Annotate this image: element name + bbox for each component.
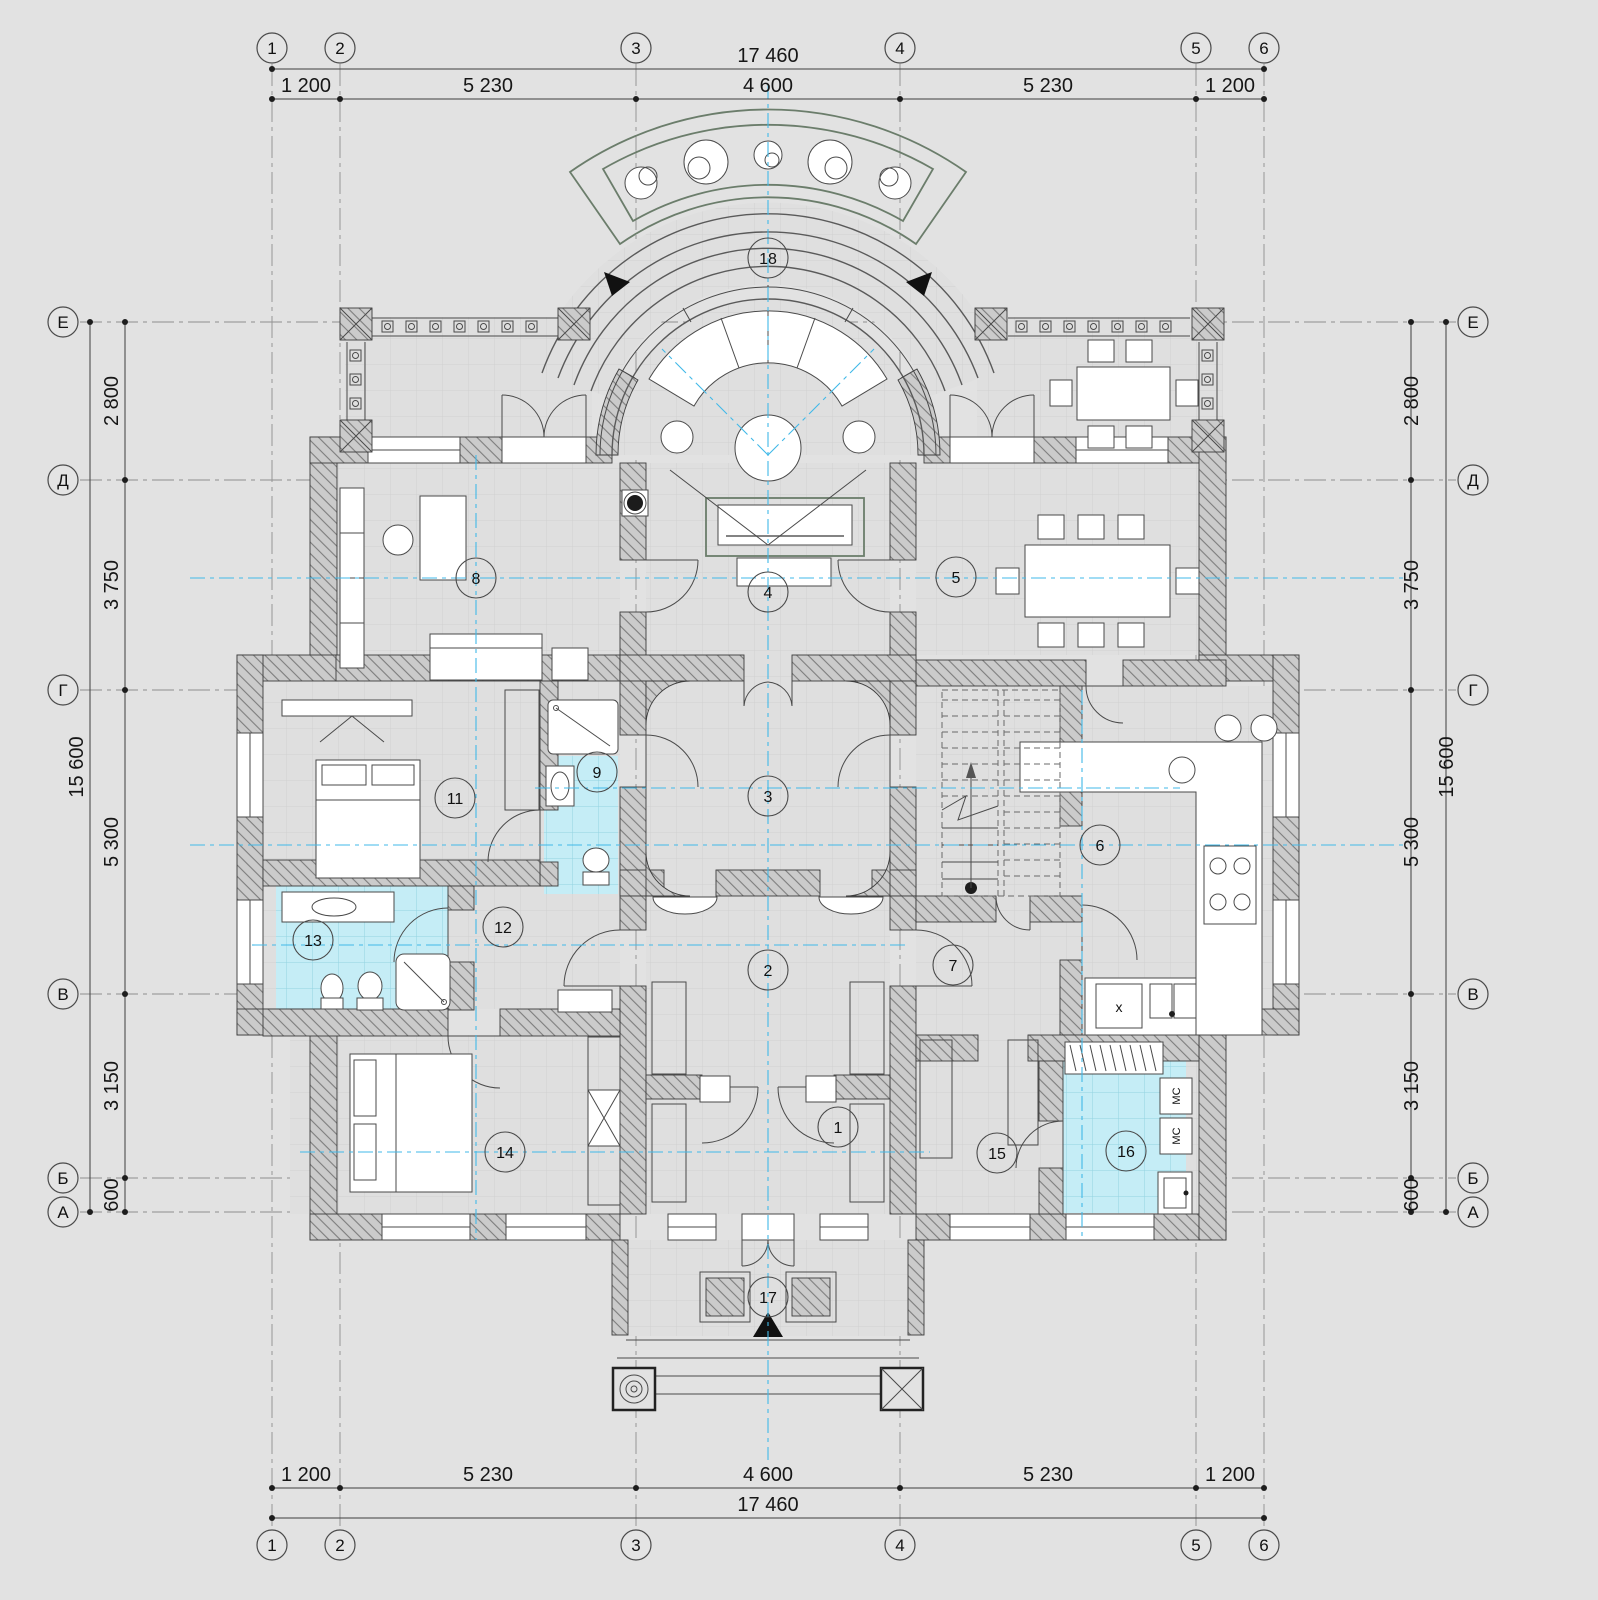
room-label-4: 4	[764, 585, 773, 602]
axis-right-d: Д	[1467, 471, 1479, 490]
axis-left-b: Б	[57, 1169, 68, 1188]
dim-bottom-total: 17 460	[737, 1494, 798, 1516]
dim-right-seg-3: 5 300	[1401, 817, 1423, 867]
dim-top-seg-3: 4 600	[743, 75, 793, 97]
bar-stool	[1251, 715, 1277, 741]
axis-top-5: 5	[1191, 39, 1200, 58]
axis-bottom-2: 2	[335, 1536, 344, 1555]
room-label-16: 16	[1117, 1144, 1135, 1161]
dim-top-seg-5: 1 200	[1205, 75, 1255, 97]
axis-top-2: 2	[335, 39, 344, 58]
dim-left-seg-2: 3 750	[101, 560, 123, 610]
dim-left-seg-4: 3 150	[101, 1061, 123, 1111]
washer-label-2: МС	[1171, 1127, 1183, 1144]
axis-left-e: Е	[57, 313, 68, 332]
dim-left-seg-1: 2 800	[101, 376, 123, 426]
axis-right-a: А	[1467, 1203, 1479, 1222]
room-label-14: 14	[496, 1145, 514, 1162]
dim-left-seg-5: 600	[101, 1178, 123, 1211]
dimensions-bottom: 1 200 5 230 4 600 5 230 1 200 17 460	[269, 1464, 1267, 1521]
room-label-3: 3	[764, 789, 773, 806]
dimensions-right: 15 600 2 800 3 750 5 300 3 150 600	[1401, 319, 1458, 1215]
room-label-8: 8	[472, 571, 481, 588]
axis-left-a: А	[57, 1203, 69, 1222]
axis-top-3: 3	[631, 39, 640, 58]
dim-bottom-seg-5: 1 200	[1205, 1464, 1255, 1486]
axis-bottom-6: 6	[1259, 1536, 1268, 1555]
dim-bottom-seg-4: 5 230	[1023, 1464, 1073, 1486]
room-label-1: 1	[834, 1120, 843, 1137]
room-label-12: 12	[494, 920, 512, 937]
axis-right-e: Е	[1467, 313, 1478, 332]
axis-bubbles-right: Е Д Г В Б А	[1458, 307, 1488, 1227]
dim-bottom-seg-3: 4 600	[743, 1464, 793, 1486]
room-label-18: 18	[759, 251, 777, 268]
dishwasher-label: х	[1116, 999, 1123, 1015]
floor-plan-drawing: МС МС х	[0, 0, 1598, 1600]
dim-left-seg-3: 5 300	[101, 817, 123, 867]
axis-right-v: В	[1467, 985, 1478, 1004]
axis-left-g: Г	[58, 681, 67, 700]
axis-bottom-5: 5	[1191, 1536, 1200, 1555]
dimensions-left: 15 600 2 800 3 750 5 300 3 150 600	[66, 319, 128, 1215]
dim-right-seg-4: 3 150	[1401, 1061, 1423, 1111]
bar-stool	[1215, 715, 1241, 741]
porch-column-right	[881, 1368, 923, 1410]
room-label-13: 13	[304, 933, 322, 950]
porch-column-left	[613, 1368, 655, 1410]
washer-label-1: МС	[1171, 1087, 1183, 1104]
stove-icon	[1204, 846, 1256, 924]
axis-top-4: 4	[895, 39, 904, 58]
dim-top-seg-2: 5 230	[463, 75, 513, 97]
dim-top-total: 17 460	[737, 45, 798, 67]
dim-right-seg-2: 3 750	[1401, 560, 1423, 610]
floor-plan-canvas: МС МС х	[0, 0, 1598, 1600]
room-label-6: 6	[1096, 838, 1105, 855]
dim-right-seg-1: 2 800	[1401, 376, 1423, 426]
axis-right-g: Г	[1468, 681, 1477, 700]
axis-left-d: Д	[57, 471, 69, 490]
dim-bottom-seg-1: 1 200	[281, 1464, 331, 1486]
axis-bottom-4: 4	[895, 1536, 904, 1555]
dim-right-seg-5: 600	[1401, 1178, 1423, 1211]
axis-top-6: 6	[1259, 39, 1268, 58]
dim-right-total: 15 600	[1436, 736, 1458, 797]
room-label-15: 15	[988, 1146, 1006, 1163]
room-label-11: 11	[447, 791, 464, 808]
room-label-2: 2	[764, 963, 773, 980]
axis-left-v: В	[57, 985, 68, 1004]
axis-top-1: 1	[267, 39, 276, 58]
dim-top-seg-4: 5 230	[1023, 75, 1073, 97]
hall-console	[558, 990, 612, 1012]
room-label-9: 9	[593, 765, 602, 782]
bar-stool	[1169, 757, 1195, 783]
room-label-5: 5	[952, 570, 961, 587]
room-label-7: 7	[949, 958, 958, 975]
dimensions-top: 17 460 1 200 5 230 4 600 5 230 1 200	[269, 45, 1267, 102]
axis-bottom-1: 1	[267, 1536, 276, 1555]
dim-left-total: 15 600	[66, 736, 88, 797]
dim-bottom-seg-2: 5 230	[463, 1464, 513, 1486]
room-label-17: 17	[759, 1290, 777, 1307]
axis-bottom-3: 3	[631, 1536, 640, 1555]
axis-bubbles-bottom: 1 2 3 4 5 6	[257, 1530, 1279, 1560]
dim-top-seg-1: 1 200	[281, 75, 331, 97]
axis-right-b: Б	[1467, 1169, 1478, 1188]
